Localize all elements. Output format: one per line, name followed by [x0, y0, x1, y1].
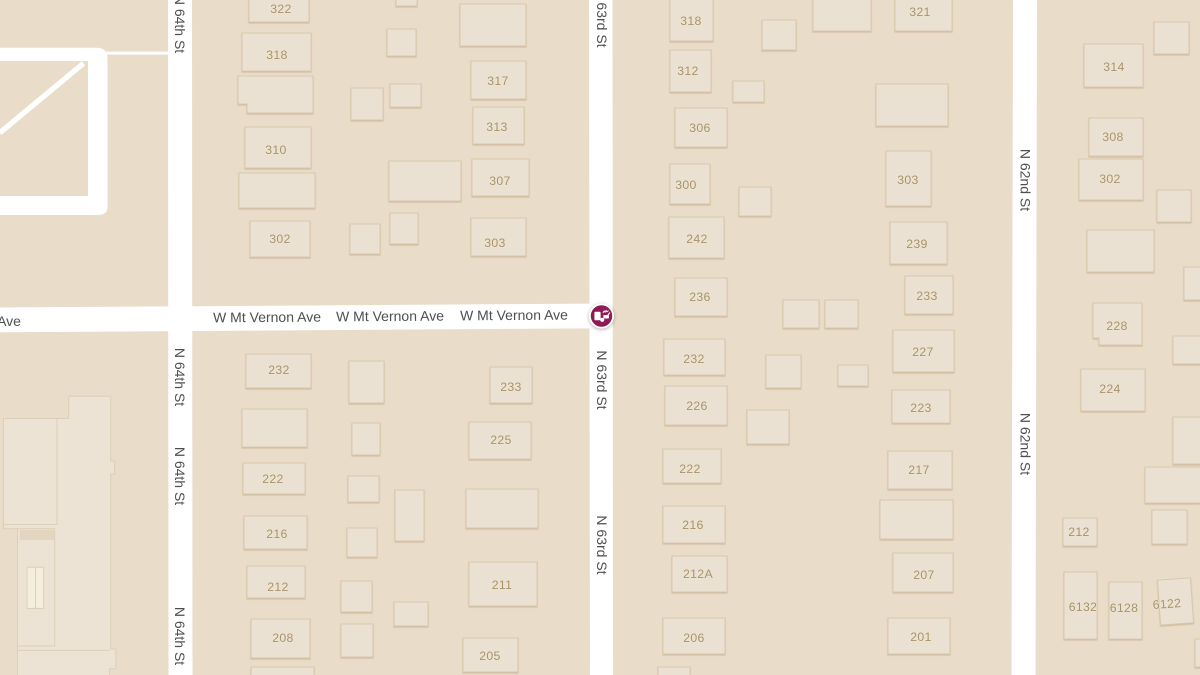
svg-text:N 63rd St: N 63rd St [594, 515, 610, 574]
svg-text:216: 216 [266, 527, 287, 541]
svg-text:233: 233 [500, 380, 521, 394]
svg-text:222: 222 [679, 462, 700, 476]
svg-text:W Mt Vernon Ave: W Mt Vernon Ave [336, 308, 444, 325]
svg-text:206: 206 [683, 631, 704, 645]
svg-text:242: 242 [686, 232, 707, 246]
svg-text:239: 239 [906, 237, 927, 251]
svg-text:W Mt Vernon Ave: W Mt Vernon Ave [213, 309, 321, 326]
svg-text:322: 322 [270, 2, 291, 16]
svg-text:223: 223 [910, 401, 931, 415]
svg-text:224: 224 [1099, 382, 1120, 396]
svg-text:225: 225 [490, 433, 511, 447]
svg-text:313: 313 [486, 120, 507, 134]
svg-text:232: 232 [683, 352, 704, 366]
svg-text:302: 302 [1099, 172, 1120, 186]
svg-text:307: 307 [489, 174, 510, 188]
svg-text:6132: 6132 [1069, 600, 1098, 614]
svg-text:227: 227 [912, 345, 933, 359]
svg-text:Ave: Ave [0, 313, 21, 329]
svg-text:212: 212 [1068, 525, 1089, 539]
svg-text:212: 212 [267, 580, 288, 594]
svg-text:216: 216 [682, 518, 703, 532]
svg-text:222: 222 [262, 472, 283, 486]
svg-text:303: 303 [484, 236, 505, 250]
svg-text:217: 217 [908, 463, 929, 477]
svg-text:212A: 212A [683, 567, 713, 581]
svg-text:308: 308 [1102, 130, 1123, 144]
svg-text:318: 318 [680, 14, 701, 28]
svg-text:N 62nd St: N 62nd St [1018, 413, 1034, 475]
svg-text:N 62nd St: N 62nd St [1018, 149, 1034, 211]
svg-text:6122: 6122 [1152, 596, 1181, 612]
svg-text:N 64th St: N 64th St [172, 447, 188, 505]
svg-text:W Mt Vernon Ave: W Mt Vernon Ave [460, 307, 568, 324]
svg-text:6128: 6128 [1110, 601, 1139, 615]
svg-text:236: 236 [689, 290, 710, 304]
svg-text:314: 314 [1103, 60, 1124, 74]
svg-text:312: 312 [677, 64, 698, 78]
svg-text:N 64th St: N 64th St [172, 0, 188, 53]
svg-text:205: 205 [479, 649, 500, 663]
svg-text:226: 226 [686, 399, 707, 413]
svg-text:N 63rd St: N 63rd St [594, 350, 610, 409]
svg-text:302: 302 [269, 232, 290, 246]
svg-text:N 64th St: N 64th St [172, 348, 188, 406]
svg-text:207: 207 [913, 568, 934, 582]
svg-text:N 64th St: N 64th St [172, 607, 188, 665]
svg-text:317: 317 [487, 74, 508, 88]
svg-text:300: 300 [675, 178, 696, 192]
svg-text:303: 303 [897, 173, 918, 187]
svg-text:306: 306 [689, 121, 710, 135]
svg-text:228: 228 [1106, 319, 1127, 333]
svg-text:208: 208 [272, 631, 293, 645]
svg-text:232: 232 [268, 363, 289, 377]
svg-text:211: 211 [492, 578, 513, 592]
svg-text:201: 201 [910, 630, 931, 644]
svg-text:318: 318 [266, 48, 287, 62]
svg-text:310: 310 [265, 143, 286, 157]
svg-text:N 63rd St: N 63rd St [594, 0, 610, 48]
svg-text:233: 233 [916, 289, 937, 303]
svg-text:321: 321 [909, 5, 930, 19]
